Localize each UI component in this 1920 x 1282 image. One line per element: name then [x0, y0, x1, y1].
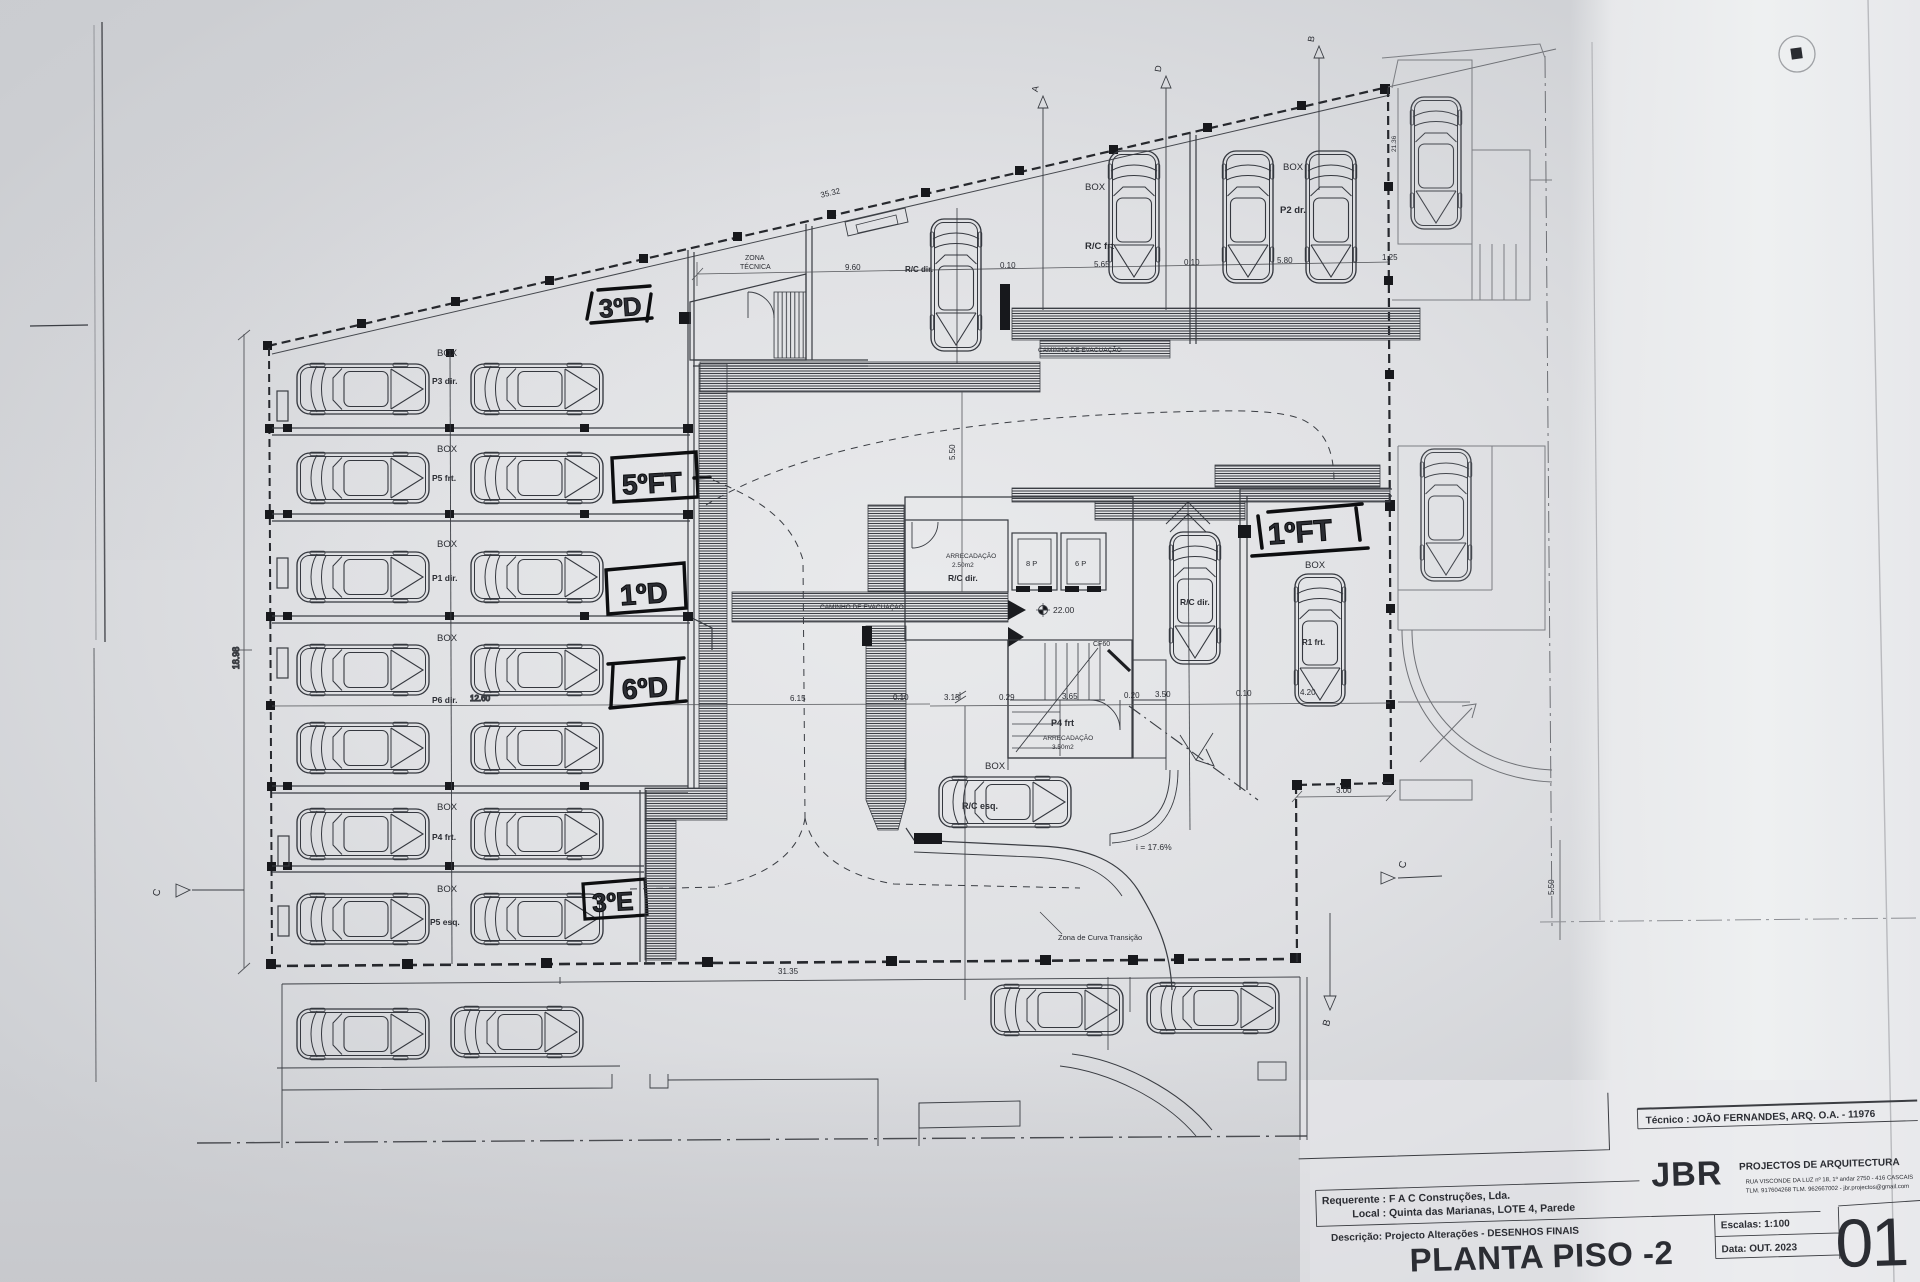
svg-text:21.36: 21.36: [1391, 135, 1398, 152]
svg-text:18.98: 18.98: [231, 647, 241, 670]
svg-text:9.60: 9.60: [845, 263, 861, 272]
svg-text:BOX: BOX: [437, 348, 458, 359]
svg-text:31.35: 31.35: [778, 967, 799, 976]
svg-text:P2 dr.: P2 dr.: [1280, 205, 1306, 216]
svg-text:CF60: CF60: [1093, 641, 1110, 648]
svg-text:BOX: BOX: [437, 633, 458, 644]
svg-text:5.50: 5.50: [948, 444, 957, 460]
svg-text:5ºFT: 5ºFT: [621, 466, 683, 500]
svg-text:CAMINHO DE EVACUAÇÃO: CAMINHO DE EVACUAÇÃO: [820, 602, 904, 611]
svg-text:8 P: 8 P: [1026, 559, 1037, 568]
svg-text:ARRECADAÇÃO: ARRECADAÇÃO: [1043, 733, 1093, 742]
svg-text:BOX: BOX: [1085, 182, 1106, 193]
svg-text:R1 frt.: R1 frt.: [1302, 638, 1325, 647]
svg-text:3.15: 3.15: [944, 693, 960, 702]
svg-text:0.10: 0.10: [1236, 689, 1252, 698]
svg-text:3.50m2: 3.50m2: [1052, 744, 1074, 751]
svg-text:R/C dir.: R/C dir.: [905, 265, 933, 274]
svg-text:R/C esq.: R/C esq.: [962, 801, 998, 811]
svg-text:2.50m2: 2.50m2: [952, 562, 974, 569]
svg-text:5.65: 5.65: [1094, 260, 1110, 269]
svg-text:0.10: 0.10: [893, 693, 909, 702]
svg-text:R/C dir.: R/C dir.: [1180, 597, 1210, 607]
svg-text:3.50: 3.50: [1155, 690, 1171, 699]
svg-text:0.20: 0.20: [1124, 691, 1140, 700]
svg-text:P5 esq.: P5 esq.: [430, 917, 460, 927]
svg-text:BOX: BOX: [437, 802, 458, 813]
svg-text:5.80: 5.80: [1277, 256, 1293, 265]
svg-text:22.00: 22.00: [1053, 605, 1075, 615]
svg-text:3.65: 3.65: [1062, 692, 1078, 701]
svg-text:R/C frt: R/C frt: [1085, 241, 1115, 252]
svg-text:0.10: 0.10: [1184, 258, 1200, 267]
svg-text:3ºE: 3ºE: [591, 886, 634, 918]
svg-text:BOX: BOX: [1305, 560, 1326, 571]
svg-text:BOX: BOX: [437, 539, 458, 550]
svg-text:1ºFT: 1ºFT: [1267, 514, 1333, 551]
svg-text:Escalas: 1:100: Escalas: 1:100: [1721, 1218, 1791, 1231]
svg-text:ZONA: ZONA: [745, 255, 765, 262]
svg-text:3.00: 3.00: [1336, 786, 1352, 795]
svg-text:P4 frt.: P4 frt.: [432, 832, 456, 842]
svg-text:3ºD: 3ºD: [598, 291, 643, 324]
svg-text:0.10: 0.10: [1000, 261, 1016, 270]
svg-text:BOX: BOX: [985, 761, 1006, 772]
svg-text:BOX: BOX: [1283, 162, 1304, 173]
svg-text:0.29: 0.29: [999, 693, 1015, 702]
svg-text:01: 01: [1834, 1204, 1908, 1282]
svg-text:1ºD: 1ºD: [619, 577, 669, 612]
svg-text:Data: OUT. 2023: Data: OUT. 2023: [1721, 1242, 1797, 1255]
svg-text:i = 17.6%: i = 17.6%: [1136, 842, 1172, 852]
svg-text:P5 frt.: P5 frt.: [432, 473, 456, 483]
svg-text:JBR: JBR: [1651, 1154, 1723, 1194]
svg-text:P6 dir.: P6 dir.: [432, 695, 458, 705]
svg-text:BOX: BOX: [437, 444, 458, 455]
svg-text:R/C dir.: R/C dir.: [948, 573, 978, 583]
svg-text:P3 dir.: P3 dir.: [432, 376, 458, 386]
svg-text:PLANTA PISO -2: PLANTA PISO -2: [1409, 1234, 1674, 1279]
svg-text:BOX: BOX: [437, 884, 458, 895]
svg-text:ARRECADAÇÃO: ARRECADAÇÃO: [946, 551, 996, 560]
svg-text:P4 frt: P4 frt: [1051, 718, 1074, 728]
svg-text:TÉCNICA: TÉCNICA: [740, 262, 771, 271]
svg-text:1.25: 1.25: [1382, 253, 1398, 262]
svg-text:6 P: 6 P: [1075, 559, 1086, 568]
svg-text:P1 dir.: P1 dir.: [432, 573, 458, 583]
svg-text:Zona de Curva Transição: Zona de Curva Transição: [1058, 933, 1142, 942]
svg-text:6ºD: 6ºD: [621, 671, 669, 705]
